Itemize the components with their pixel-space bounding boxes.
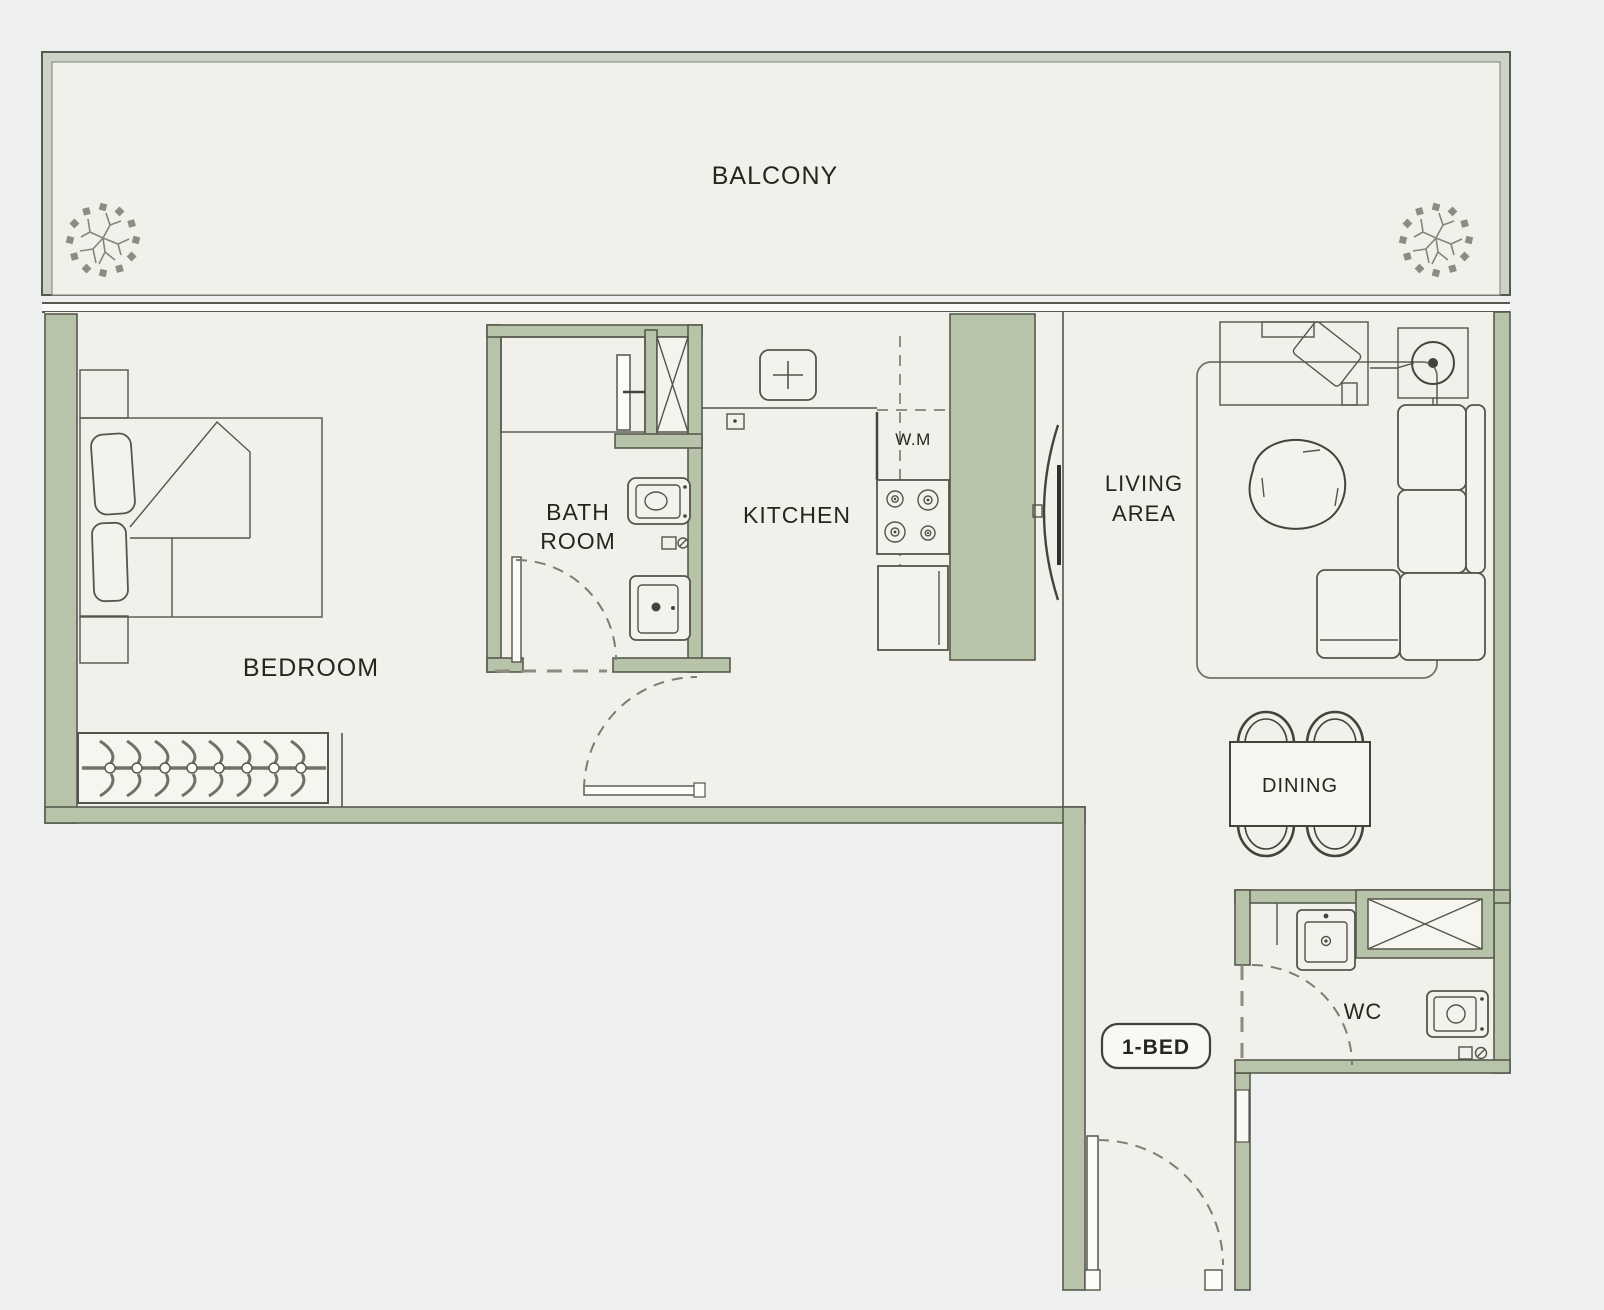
wardrobe bbox=[78, 733, 342, 807]
wall-wc-left bbox=[1235, 890, 1250, 965]
wall-corridor-left bbox=[1063, 807, 1085, 1290]
window-band bbox=[42, 303, 1510, 312]
hall-door-leaf bbox=[584, 786, 697, 795]
door-post bbox=[1085, 1270, 1100, 1290]
coffee-table bbox=[1250, 440, 1346, 529]
wall-bottom bbox=[45, 807, 1085, 823]
wall-notch bbox=[1236, 1090, 1249, 1142]
living-label-line2: AREA bbox=[1112, 501, 1176, 526]
wall-shower-divider bbox=[645, 330, 657, 440]
sink-basin-icon bbox=[1427, 991, 1488, 1037]
unit-badge-label: 1-BED bbox=[1122, 1036, 1190, 1059]
wall-bath-left bbox=[487, 325, 501, 672]
cross-box-icon bbox=[657, 337, 688, 432]
wall-right-outer bbox=[1494, 312, 1510, 1073]
kitchen-label: KITCHEN bbox=[743, 502, 851, 528]
toilet-icon bbox=[630, 576, 690, 640]
hob-dot bbox=[733, 419, 737, 423]
kitchen-sink-icon bbox=[760, 350, 816, 400]
unit-badge: 1-BED bbox=[1102, 1024, 1210, 1068]
pillow bbox=[90, 433, 135, 516]
wall-kitchen-right bbox=[950, 314, 1035, 660]
floor-plan: BALCONY bbox=[0, 0, 1604, 1310]
cross-box-icon bbox=[1356, 890, 1494, 958]
washing-machine-label: W.M bbox=[895, 430, 931, 449]
living-label-line1: LIVING bbox=[1105, 471, 1183, 496]
pillow bbox=[92, 522, 129, 601]
wall-bedroom-left bbox=[45, 314, 77, 823]
wall-bath-top bbox=[487, 325, 702, 337]
toilet-icon bbox=[1297, 910, 1355, 970]
wall-wc-bottom bbox=[1235, 1060, 1510, 1073]
wall-shower-bottom bbox=[615, 434, 702, 448]
bathroom-door-leaf bbox=[512, 557, 521, 662]
wc-label: WC bbox=[1344, 999, 1383, 1024]
entry-door-leaf bbox=[1087, 1136, 1098, 1274]
lower-cabinet bbox=[878, 566, 948, 650]
bathroom-label-line2: ROOM bbox=[540, 528, 616, 554]
balcony-label: BALCONY bbox=[712, 162, 838, 190]
floor-plan-canvas: BALCONY bbox=[0, 0, 1604, 1310]
door-post bbox=[1205, 1270, 1222, 1290]
wall-bath-bottom-right bbox=[613, 658, 730, 672]
dining-label: DINING bbox=[1262, 775, 1338, 797]
window-glass bbox=[42, 303, 1510, 312]
balcony: BALCONY bbox=[42, 52, 1510, 295]
sink-basin-icon bbox=[628, 478, 690, 524]
door-hinge bbox=[694, 783, 705, 797]
four-burner-stove-icon bbox=[877, 480, 949, 554]
bathroom-label-line1: BATH bbox=[546, 499, 610, 525]
bedroom-label: BEDROOM bbox=[243, 654, 379, 682]
